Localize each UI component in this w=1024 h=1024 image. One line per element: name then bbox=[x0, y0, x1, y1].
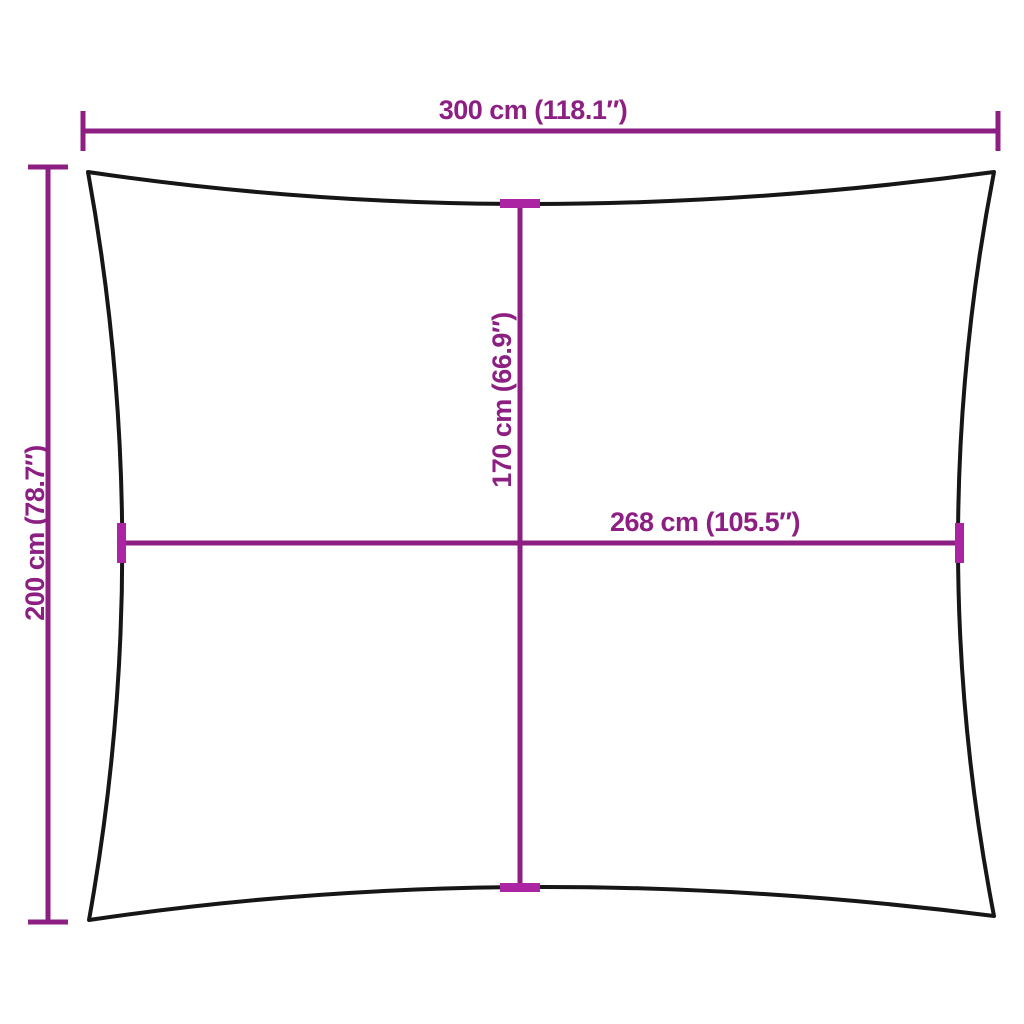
dimension-height: 200 cm (78.7″) bbox=[20, 167, 68, 922]
inner-height-dimension-label: 170 cm (66.9″) bbox=[487, 312, 517, 488]
height-dimension-label: 200 cm (78.7″) bbox=[20, 445, 50, 621]
shade-sail-diagram-canvas: 300 cm (118.1″) 200 cm (78.7″) 170 cm (6… bbox=[0, 0, 1024, 1024]
inner-height-tick-bottom bbox=[500, 883, 540, 892]
sail-outline bbox=[88, 172, 994, 920]
dimension-width: 300 cm (118.1″) bbox=[83, 95, 998, 151]
product-dimension-diagram: 300 cm (118.1″) 200 cm (78.7″) 170 cm (6… bbox=[0, 0, 1024, 1024]
inner-width-dimension-label: 268 cm (105.5″) bbox=[610, 507, 800, 537]
inner-width-tick-right bbox=[955, 523, 964, 563]
width-dimension-label: 300 cm (118.1″) bbox=[439, 95, 628, 125]
inner-height-tick-top bbox=[500, 199, 540, 208]
dimension-inner-width: 268 cm (105.5″) bbox=[117, 507, 964, 563]
inner-width-tick-left bbox=[117, 523, 126, 563]
